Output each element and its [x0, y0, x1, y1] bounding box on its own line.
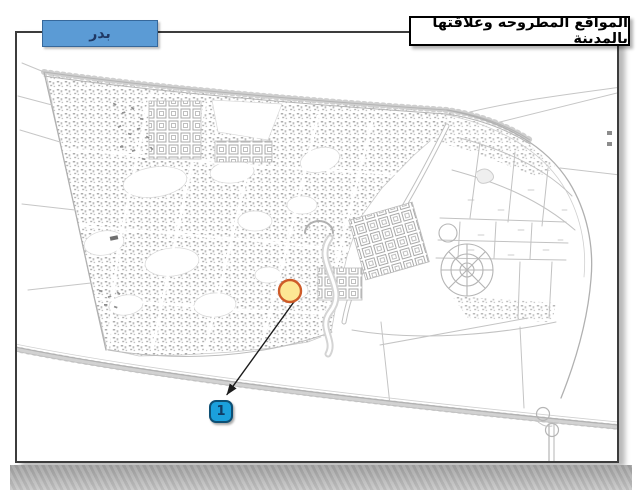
site-number: 1 [216, 404, 225, 419]
parcel-label-scribbles [468, 190, 567, 255]
region-label-box: بدر [42, 20, 158, 47]
slide-title-box: المواقع المطروحه وعلاقتها بالمدينة [409, 16, 630, 46]
site-number-badge: 1 [209, 400, 233, 423]
city-map-drawing [0, 0, 640, 500]
small-dark-structures [607, 131, 612, 146]
southern-highway [15, 344, 618, 429]
slide: بدر المواقع المطروحه وعلاقتها بالمدينة 1 [0, 0, 640, 500]
scan-shadow-band [10, 465, 632, 490]
ring-roundabout [439, 224, 493, 296]
southern-parcels [380, 318, 528, 408]
slide-title: المواقع المطروحه وعلاقتها بالمدينة [411, 15, 628, 47]
region-label: بدر [89, 26, 110, 42]
site-marker-circle [279, 280, 301, 302]
